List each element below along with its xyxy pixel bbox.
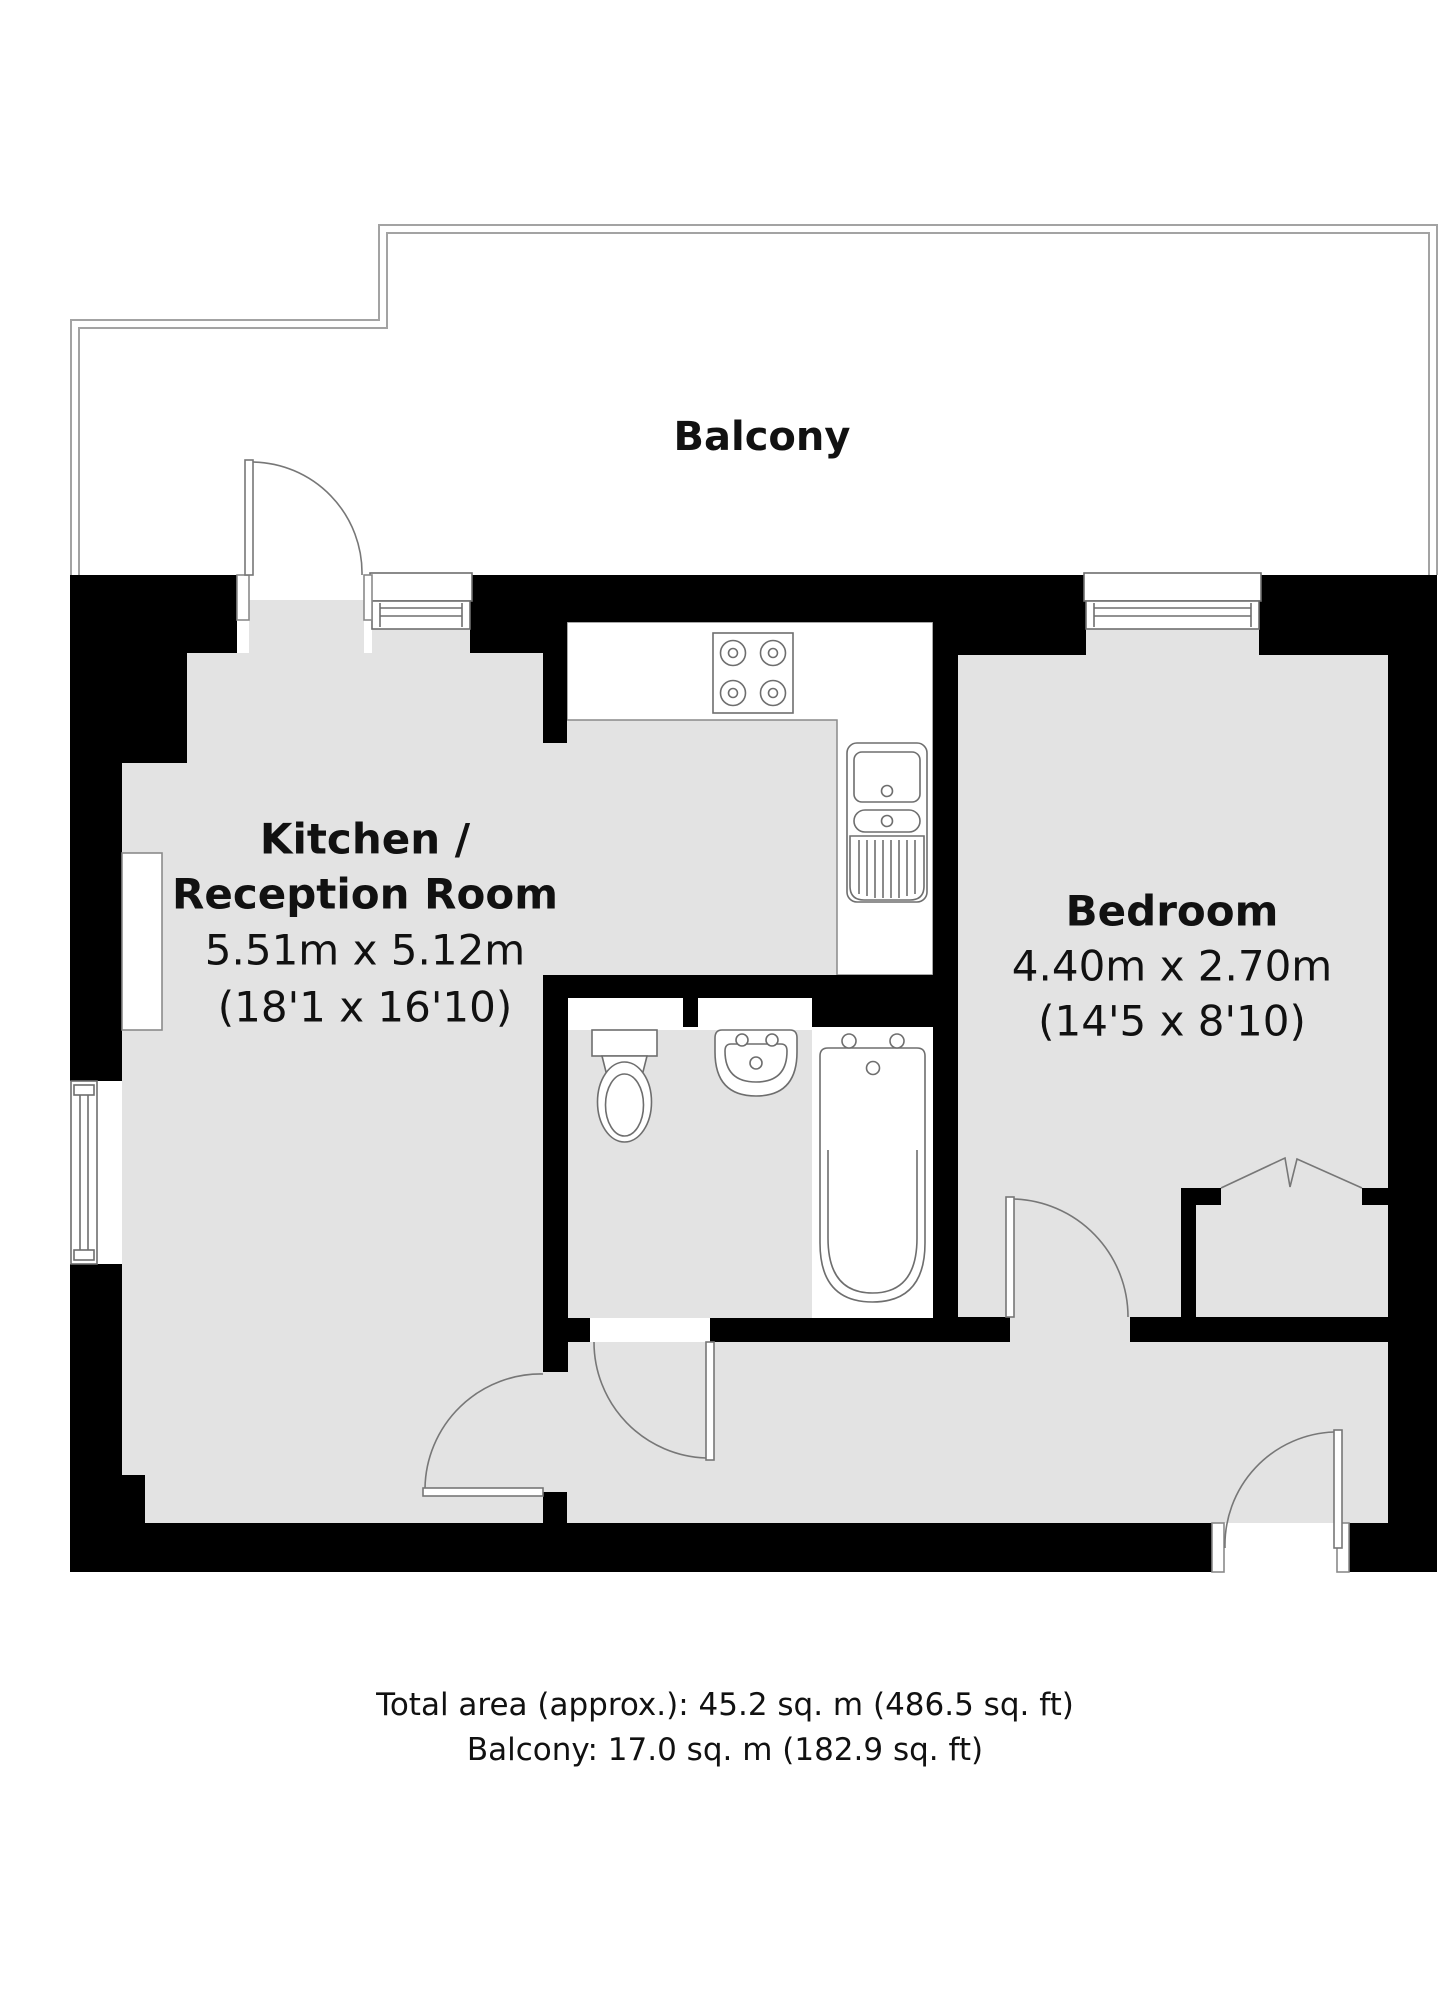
floor-kitchen-upper <box>187 653 545 763</box>
wall-left-step <box>122 1475 145 1523</box>
wall-bathroom-top-stub <box>683 998 698 1027</box>
wall-top-right <box>1259 575 1437 655</box>
bedroom-title: Bedroom <box>1066 885 1279 940</box>
floor-balcony-doorway <box>249 600 364 655</box>
balcony-area-text: Balcony: 17.0 sq. m (182.9 sq. ft) <box>467 1730 983 1770</box>
wall-top-middle <box>470 575 1086 622</box>
wall-top-middle-lower <box>470 622 543 653</box>
floor-kitchen-window-recess <box>372 629 470 655</box>
floorplan-page: Balcony Kitchen / Reception Room 5.51m x… <box>0 0 1444 2000</box>
wall-top-bedroom-left <box>958 622 1086 655</box>
wall-closet-stub-left <box>1181 1188 1221 1205</box>
kitchen-title-line1: Kitchen / <box>260 813 470 868</box>
left-window-icon <box>70 1081 122 1264</box>
wall-left-upper <box>70 653 187 763</box>
floor-bedroom-window-recess <box>1086 629 1259 655</box>
wall-right <box>1388 655 1437 1523</box>
bathroom-niche-right <box>698 998 812 1027</box>
entrance-jamb-left <box>1212 1523 1224 1572</box>
bedroom-window-icon <box>1084 573 1261 629</box>
wall-bathroom-left <box>543 975 568 1372</box>
bedroom-dimensions-imperial: (14'5 x 8'10) <box>1038 995 1306 1050</box>
basin-icon <box>715 1030 797 1096</box>
wall-left-middle <box>70 763 122 1081</box>
wall-bottom <box>70 1523 1212 1572</box>
wall-kitchen-door-stub <box>543 1492 567 1523</box>
wall-bathroom-top <box>545 975 933 998</box>
wall-bottom-right <box>1349 1523 1437 1572</box>
kitchen-title-line2: Reception Room <box>172 868 558 923</box>
kitchen-dimensions-metric: 5.51m x 5.12m <box>205 924 525 979</box>
floor-bedroom-doorway <box>1010 1317 1130 1342</box>
toilet-icon <box>592 1030 657 1142</box>
balcony-label: Balcony <box>674 411 851 463</box>
wall-stub-kitchen-nook <box>543 622 567 743</box>
wall-bathroom-bottom-left <box>568 1318 590 1342</box>
wall-closet-left <box>1181 1205 1196 1317</box>
kitchen-dimensions-imperial: (18'1 x 16'10) <box>218 981 512 1036</box>
bathtub-icon <box>820 1034 925 1302</box>
kitchen-window-icon <box>370 573 472 629</box>
balcony-jamb-right <box>364 575 372 620</box>
bathroom-niche-left <box>568 998 683 1027</box>
kitchen-sink-icon <box>847 743 927 902</box>
wall-left-lower <box>70 1264 122 1523</box>
bedroom-dimensions-metric: 4.40m x 2.70m <box>1012 940 1332 995</box>
wall-divider-bedroom <box>933 575 958 1318</box>
wall-top-left <box>70 575 237 653</box>
floor-hallway <box>545 1342 1388 1523</box>
floor-kitchen-doorway <box>543 1372 567 1492</box>
wall-niche <box>122 853 162 1030</box>
wall-bathroom-bottom <box>710 1318 958 1342</box>
floor-kitchen-nook <box>545 720 837 975</box>
wall-bedroom-bottom-right <box>1130 1317 1388 1342</box>
balcony-jamb-left <box>237 575 249 620</box>
total-area-text: Total area (approx.): 45.2 sq. m (486.5 … <box>376 1685 1074 1725</box>
wall-above-bath <box>812 998 933 1027</box>
wall-bedroom-bottom-left <box>958 1317 1010 1342</box>
hob-icon <box>713 633 793 713</box>
balcony-door-icon <box>245 460 362 575</box>
wall-closet-stub-right <box>1362 1188 1388 1205</box>
